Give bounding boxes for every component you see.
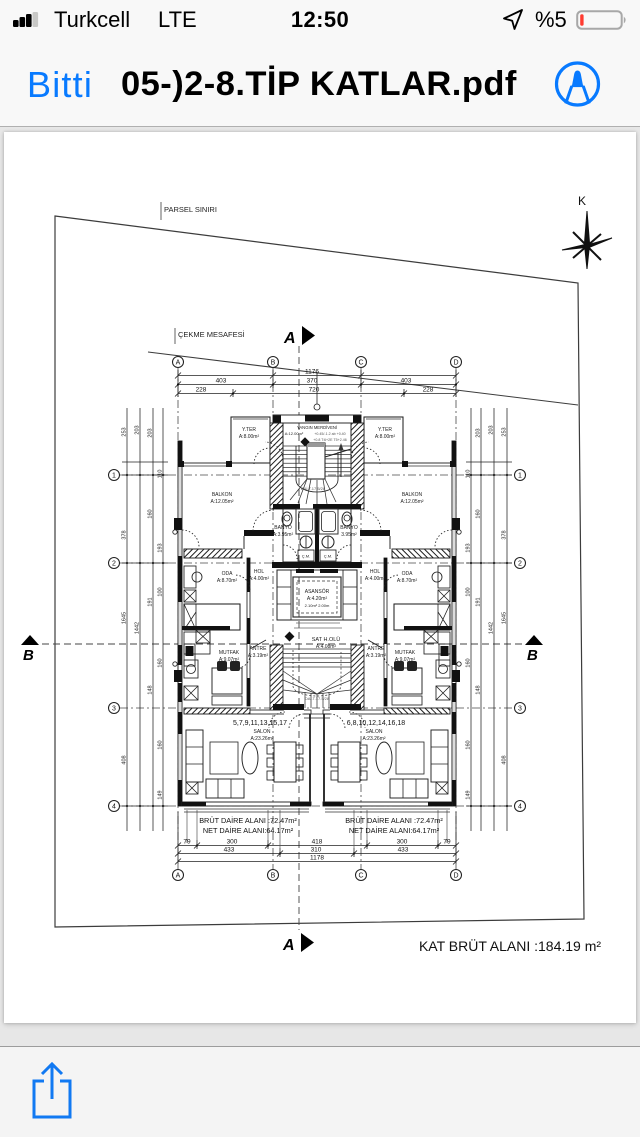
svg-text:148: 148	[148, 685, 154, 694]
svg-text:160: 160	[158, 658, 164, 667]
svg-text:A:23.26m²: A:23.26m²	[362, 736, 385, 742]
svg-text:A:8.70m²: A:8.70m²	[397, 578, 418, 584]
svg-text:A:12.00m²: A:12.00m²	[285, 431, 304, 436]
svg-text:5,7,9,11,13,15,17: 5,7,9,11,13,15,17	[233, 720, 287, 727]
svg-text:ÇEKME MESAFESİ: ÇEKME MESAFESİ	[178, 330, 245, 339]
svg-text:A:9.07m²: A:9.07m²	[219, 657, 240, 663]
svg-text:403: 403	[216, 378, 227, 385]
svg-text:A:9.07m²: A:9.07m²	[395, 657, 416, 663]
svg-text:A:4.00m²: A:4.00m²	[249, 576, 270, 582]
svg-text:A:3.19m²: A:3.19m²	[366, 653, 387, 659]
svg-text:160: 160	[148, 509, 154, 518]
svg-text:203: 203	[148, 428, 154, 437]
svg-text:A: A	[176, 873, 181, 880]
svg-text:433: 433	[224, 847, 235, 854]
svg-text:408: 408	[502, 755, 508, 764]
svg-text:228: 228	[423, 387, 434, 394]
svg-text:191: 191	[148, 597, 154, 606]
svg-text:433: 433	[398, 847, 409, 854]
svg-text:A: A	[283, 330, 296, 347]
svg-text:A:4.08m²: A:4.08m²	[316, 644, 337, 650]
svg-text:BALKON: BALKON	[212, 492, 233, 498]
svg-text:MUTFAK: MUTFAK	[395, 650, 416, 656]
svg-text:ODA: ODA	[222, 571, 234, 577]
svg-text:ODA: ODA	[402, 571, 414, 577]
svg-text:B: B	[271, 873, 276, 880]
svg-text:Ç.M.: Ç.M.	[324, 554, 332, 559]
svg-text:SALON: SALON	[366, 729, 383, 735]
svg-text:NET DAİRE ALANI:64.17m²: NET DAİRE ALANI:64.17m²	[203, 826, 294, 835]
svg-text:BANYO: BANYO	[340, 525, 358, 531]
svg-text:SAT H.OLÜ: SAT H.OLÜ	[312, 636, 341, 643]
svg-text:A:8.00m²: A:8.00m²	[375, 434, 396, 440]
svg-text:A: A	[176, 360, 181, 367]
svg-text:1: 1	[112, 473, 116, 480]
svg-text:1: 1	[518, 473, 522, 480]
svg-text:418: 418	[312, 839, 323, 846]
svg-text:BALKON: BALKON	[402, 492, 423, 498]
svg-text:203: 203	[489, 425, 495, 434]
svg-text:191: 191	[476, 597, 482, 606]
svg-text:ANTRE: ANTRE	[250, 646, 268, 652]
svg-text:A:23.26m²: A:23.26m²	[250, 736, 273, 742]
svg-text:2: 2	[112, 561, 116, 568]
svg-text:300: 300	[227, 839, 238, 846]
svg-text:4: 4	[112, 804, 116, 811]
svg-text:A:4.00m²: A:4.00m²	[365, 576, 386, 582]
svg-text:253: 253	[502, 427, 508, 436]
svg-text:B: B	[527, 647, 538, 664]
svg-text:403: 403	[401, 378, 412, 385]
svg-text:A:8.00m²: A:8.00m²	[239, 434, 260, 440]
svg-text:378: 378	[122, 530, 128, 539]
svg-text:K: K	[578, 194, 586, 208]
svg-text:1442: 1442	[135, 622, 141, 634]
svg-text:A: A	[282, 937, 295, 954]
svg-text:193: 193	[466, 543, 472, 552]
svg-text:HOL: HOL	[370, 569, 381, 575]
svg-text:D: D	[453, 873, 458, 880]
svg-text:3: 3	[112, 706, 116, 713]
svg-text:148: 148	[476, 685, 482, 694]
svg-text:A:8.70m²: A:8.70m²	[217, 578, 238, 584]
svg-text:149: 149	[158, 790, 164, 799]
svg-text:A:12.05m²: A:12.05m²	[400, 499, 423, 505]
svg-text:DAİ.T.17.5/28: DAİ.T.17.5/28	[305, 696, 330, 701]
svg-text:PARSEL SINIRI: PARSEL SINIRI	[164, 205, 217, 214]
svg-text:100: 100	[466, 587, 472, 596]
svg-text:1442: 1442	[489, 622, 495, 634]
svg-text:+0.8 T:6+2E T5+2.46: +0.8 T:6+2E T5+2.46	[313, 438, 347, 442]
svg-text:2: 2	[518, 561, 522, 568]
svg-text:BRÜT DAİRE ALANI :72.47m²: BRÜT DAİRE ALANI :72.47m²	[345, 816, 443, 825]
svg-text:ANTRE: ANTRE	[368, 646, 386, 652]
svg-text:110: 110	[466, 470, 472, 479]
svg-text:B: B	[23, 647, 34, 664]
svg-text:193: 193	[158, 543, 164, 552]
svg-text:MUTFAK: MUTFAK	[219, 650, 240, 656]
svg-text:1645: 1645	[122, 612, 128, 624]
svg-text:A:12.05m²: A:12.05m²	[210, 499, 233, 505]
svg-text:408: 408	[122, 755, 128, 764]
svg-text:228: 228	[196, 387, 207, 394]
svg-text:253: 253	[122, 427, 128, 436]
svg-text:79: 79	[183, 839, 191, 846]
svg-text:160: 160	[158, 740, 164, 749]
svg-text:SALON: SALON	[254, 729, 271, 735]
svg-text:1645: 1645	[502, 612, 508, 624]
svg-text:HOL: HOL	[254, 569, 265, 575]
svg-text:3.95m²: 3.95m²	[341, 532, 357, 538]
svg-text:A:3.95m²: A:3.95m²	[273, 532, 294, 538]
svg-text:160: 160	[476, 509, 482, 518]
svg-text:BANYO: BANYO	[274, 525, 292, 531]
svg-text:160: 160	[466, 740, 472, 749]
svg-text:KAT BRÜT ALANI :184.19 m²: KAT BRÜT ALANI :184.19 m²	[419, 937, 601, 954]
svg-text:C: C	[358, 873, 363, 880]
svg-text:160: 160	[466, 658, 472, 667]
svg-text:1176: 1176	[305, 369, 319, 376]
svg-text:Y.TER: Y.TER	[242, 427, 256, 433]
svg-text:310: 310	[311, 847, 322, 854]
svg-text:4: 4	[518, 804, 522, 811]
svg-text:A:4.20m²: A:4.20m²	[307, 596, 328, 602]
svg-text:NET DAİRE ALANI:64.17m²: NET DAİRE ALANI:64.17m²	[349, 826, 440, 835]
svg-text:D: D	[453, 360, 458, 367]
svg-text:203: 203	[135, 425, 141, 434]
svg-text:B: B	[271, 360, 276, 367]
svg-text:1178: 1178	[310, 855, 324, 862]
svg-text:Ç.M.: Ç.M.	[302, 554, 310, 559]
svg-text:79: 79	[443, 839, 451, 846]
svg-text:203: 203	[476, 428, 482, 437]
svg-text:YANGIN MERDİVENİ: YANGIN MERDİVENİ	[297, 425, 337, 430]
svg-text:110: 110	[158, 470, 164, 479]
svg-text:149: 149	[466, 790, 472, 799]
svg-text:A:3.19m²: A:3.19m²	[248, 653, 269, 659]
svg-text:BRÜT DAİRE ALANI :72.47m²: BRÜT DAİRE ALANI :72.47m²	[199, 816, 297, 825]
svg-text:378: 378	[502, 530, 508, 539]
svg-text:300: 300	[397, 839, 408, 846]
svg-text:370: 370	[307, 378, 318, 385]
svg-text:6,8,10,12,14,16,18: 6,8,10,12,14,16,18	[347, 720, 405, 727]
svg-text:3: 3	[518, 706, 522, 713]
svg-text:ASANSÖR: ASANSÖR	[305, 588, 330, 595]
svg-text:C: C	[358, 360, 363, 367]
svg-text:+0.45/-1.2 ab +0.40: +0.45/-1.2 ab +0.40	[314, 432, 345, 436]
svg-text:100: 100	[158, 587, 164, 596]
svg-text:Y.TER: Y.TER	[378, 427, 392, 433]
svg-text:2.10m² 2.00m: 2.10m² 2.00m	[305, 603, 330, 608]
svg-text:720: 720	[309, 387, 320, 394]
svg-text:DAİ.T.17.5/28: DAİ.T.17.5/28	[301, 486, 326, 491]
